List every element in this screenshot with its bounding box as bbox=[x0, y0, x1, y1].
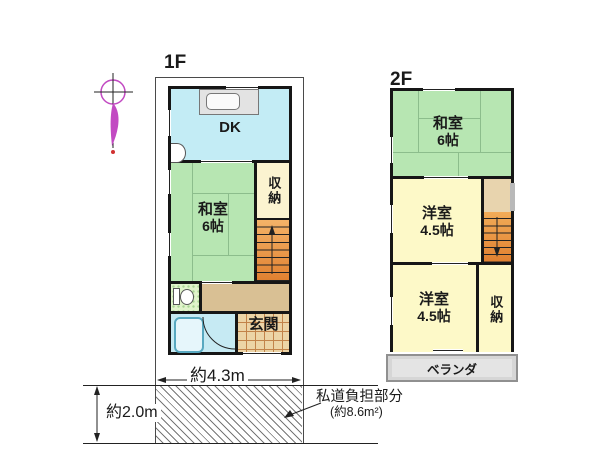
veranda: ベランダ bbox=[386, 354, 518, 382]
window bbox=[433, 349, 463, 352]
road-boundary-line bbox=[83, 385, 378, 386]
floor-plan-canvas: 1F DK 和室 6帖 収納 玄関 2F bbox=[0, 0, 600, 460]
room-name: 洋室 bbox=[422, 206, 452, 223]
window bbox=[390, 205, 393, 233]
floor-label-1f: 1F bbox=[164, 52, 186, 73]
room-label-western-mid: 洋室 4.5帖 bbox=[397, 202, 477, 242]
tatami-line bbox=[393, 152, 511, 153]
private-road-note-line2: (約8.6m²) bbox=[330, 405, 383, 419]
window bbox=[423, 88, 455, 91]
dimension-road-depth: 約2.0m bbox=[103, 404, 161, 422]
sliding-door-gap bbox=[202, 281, 232, 284]
north-arrow-icon bbox=[94, 73, 133, 154]
floor-label-2f: 2F bbox=[390, 69, 412, 90]
tatami-line bbox=[458, 152, 459, 176]
tatami-line bbox=[192, 255, 254, 256]
room-label-closet-1f: 収納 bbox=[257, 168, 289, 214]
door-gap bbox=[432, 262, 468, 265]
window bbox=[168, 233, 171, 256]
wall bbox=[481, 179, 484, 262]
window bbox=[390, 297, 393, 325]
private-road-note-line1: 私道負担部分 bbox=[316, 389, 403, 405]
room-name: 和室 bbox=[433, 116, 463, 133]
dimension-frontage: 約4.3m bbox=[187, 366, 248, 385]
room-label-veranda: ベランダ bbox=[427, 359, 477, 378]
room-size: 6帖 bbox=[202, 219, 224, 235]
room-label-dk: DK bbox=[171, 120, 289, 137]
sliding-door-gap bbox=[201, 160, 252, 163]
window bbox=[168, 170, 171, 194]
stairs-landing-2f bbox=[484, 179, 511, 212]
toilet-icon bbox=[180, 289, 194, 305]
room-size: 4.5帖 bbox=[420, 223, 453, 239]
toilet-icon bbox=[173, 288, 180, 305]
wall bbox=[199, 284, 202, 311]
room-label-washitsu-2f: 和室 6帖 bbox=[408, 112, 488, 152]
sliding-door-gap bbox=[424, 176, 468, 179]
dimension-arrow-vertical bbox=[94, 386, 100, 442]
kitchen-sink-icon bbox=[206, 93, 240, 110]
room-label-closet-2f: 収納 bbox=[479, 285, 511, 335]
room-label-western-lower: 洋室 4.5帖 bbox=[394, 288, 474, 328]
stairs-2f bbox=[484, 212, 511, 262]
room-name: 洋室 bbox=[419, 292, 449, 309]
window bbox=[390, 137, 393, 163]
tatami-line bbox=[192, 193, 254, 194]
window bbox=[226, 86, 258, 89]
window bbox=[510, 183, 515, 211]
entrance-door-gap bbox=[243, 352, 281, 355]
bathtub-icon bbox=[174, 317, 204, 353]
room-size: 6帖 bbox=[437, 133, 459, 149]
room-label-washitsu-1f: 和室 6帖 bbox=[180, 200, 246, 236]
room-name: 和室 bbox=[198, 202, 228, 219]
room-size: 4.5帖 bbox=[417, 309, 450, 325]
road-boundary-line bbox=[83, 443, 378, 444]
room-label-genkan: 玄関 bbox=[238, 317, 289, 334]
wall bbox=[257, 218, 289, 220]
wall bbox=[168, 311, 292, 314]
